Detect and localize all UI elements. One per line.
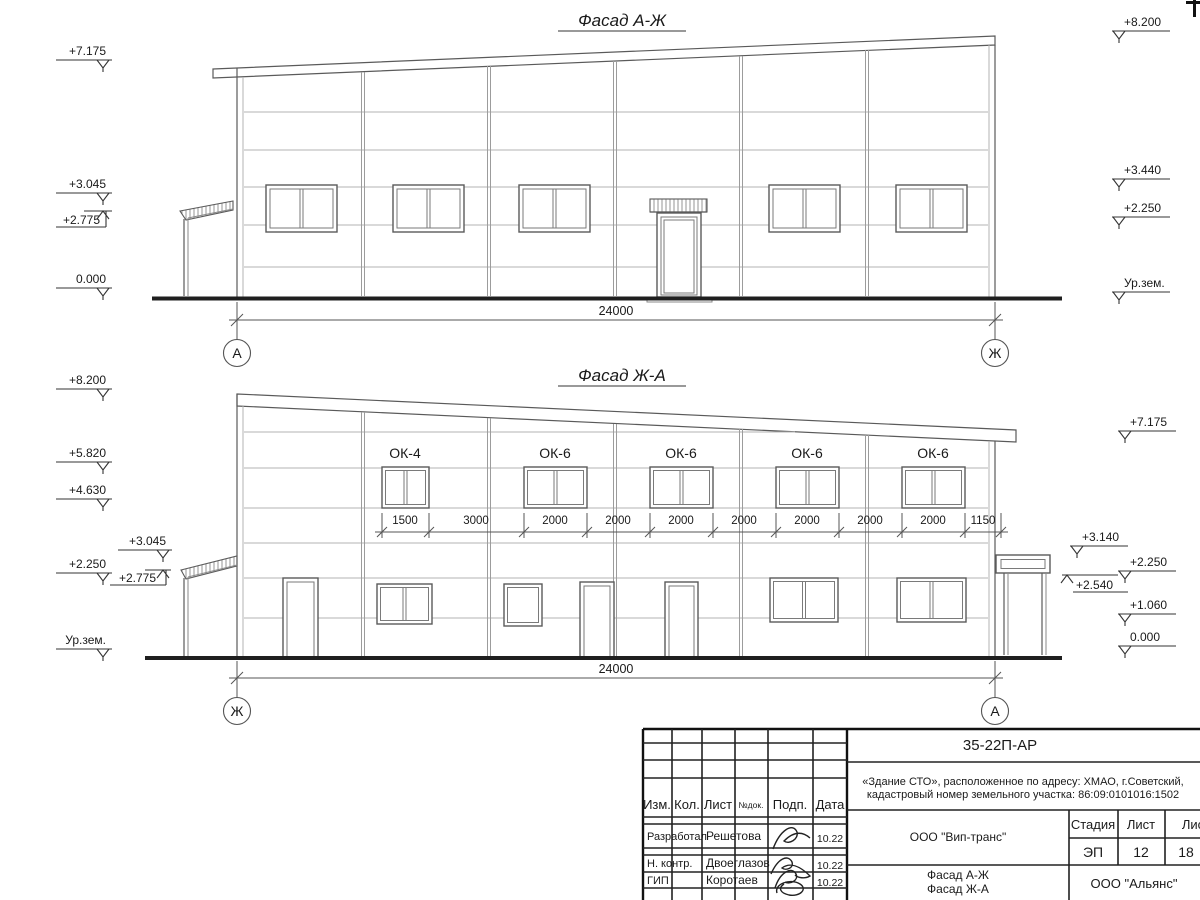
dim-text: 2000 xyxy=(857,515,883,527)
facade-top-dimension: 24000 xyxy=(229,302,1003,340)
row-role: Н. контр. xyxy=(647,858,692,870)
elevation-mark: +8.200 xyxy=(1124,15,1161,29)
facade-top-window-4 xyxy=(769,185,840,232)
signature-stroke xyxy=(771,858,810,878)
window-label: ОК-4 xyxy=(389,445,421,461)
dim-text: 2000 xyxy=(794,515,820,527)
facade-top-span-dim: 24000 xyxy=(599,304,634,318)
sheet-value: 12 xyxy=(1133,844,1149,860)
drawing-sheet: Фасад А-Ж xyxy=(0,0,1200,900)
elevation-mark: Ур.зем. xyxy=(1124,276,1165,290)
facade-top-porch xyxy=(180,201,233,296)
sheets-value: 18 xyxy=(1178,844,1194,860)
elevation-mark: +2.775 xyxy=(119,571,156,585)
facade-bottom-window-ok6-3 xyxy=(776,467,839,508)
facade-bottom-door-3 xyxy=(665,582,698,658)
drawing-title-line1: Фасад А-Ж xyxy=(927,868,989,882)
facade-top-title: Фасад А-Ж xyxy=(578,11,667,30)
axis-letter: Ж xyxy=(989,345,1002,361)
axis-marker-top-right: Ж xyxy=(982,340,1009,367)
facade-top-drawing: Фасад А-Ж xyxy=(56,11,1170,367)
col-header-kol: Кол. xyxy=(674,797,700,812)
elevation-mark: +7.175 xyxy=(1130,415,1167,429)
row-date: 10.22 xyxy=(817,833,843,845)
elevation-mark: Ур.зем. xyxy=(65,633,106,647)
col-header-podp: Подп. xyxy=(773,797,808,812)
title-block: Изм. Кол. Лист №док. Подп. Дата Разработ… xyxy=(643,729,1200,900)
facade-bottom-window-ok4 xyxy=(382,467,429,508)
facade-bottom-elevation-marks-left: +8.200 +5.820 +4.630 +3.045 +2.250 +2.77… xyxy=(56,373,172,661)
elevation-mark: +7.175 xyxy=(69,44,106,58)
facade-bottom-window-dims: 1500 3000 2000 2000 2000 2000 2000 2000 … xyxy=(375,513,1008,538)
window-label: ОК-6 xyxy=(917,445,949,461)
sheets-label: Листов xyxy=(1182,817,1200,832)
row-name: Двоеглазов xyxy=(706,856,770,870)
facade-bottom-dimension: 24000 xyxy=(229,661,1003,698)
facade-bottom-lower-window-4 xyxy=(897,578,966,622)
window-label: ОК-6 xyxy=(665,445,697,461)
axis-letter: А xyxy=(990,703,1000,719)
sheet-frame-corner xyxy=(1186,0,1200,17)
facade-bottom-door-2 xyxy=(580,582,614,658)
axis-marker-bottom-right: А xyxy=(982,698,1009,725)
facades-drawing-svg: Фасад А-Ж xyxy=(0,0,1200,900)
dim-text: 1150 xyxy=(971,515,996,527)
col-header-data: Дата xyxy=(816,797,846,812)
facade-bottom-window-ok6-1 xyxy=(524,467,587,508)
signature-row-developer: Разработал Решетова 10.22 xyxy=(647,828,843,849)
elevation-mark: +2.250 xyxy=(1124,201,1161,215)
window-label: ОК-6 xyxy=(539,445,571,461)
dim-text: 3000 xyxy=(463,515,489,527)
elevation-mark: +2.775 xyxy=(63,213,100,227)
facade-bottom-title: Фасад Ж-А xyxy=(578,366,666,385)
dim-text: 1500 xyxy=(392,515,418,527)
dim-text: 2000 xyxy=(920,515,946,527)
elevation-mark: +4.630 xyxy=(69,483,106,497)
project-description-line1: «Здание СТО», расположенное по адресу: Х… xyxy=(862,776,1183,788)
facade-bottom-porch xyxy=(181,556,237,656)
axis-marker-bottom-left: Ж xyxy=(224,698,251,725)
facade-top-window-5 xyxy=(896,185,967,232)
window-label: ОК-6 xyxy=(791,445,823,461)
elevation-mark: +2.540 xyxy=(1076,578,1113,592)
company-name: ООО "Вип-транс" xyxy=(910,830,1007,844)
elevation-mark: +2.250 xyxy=(69,557,106,571)
facade-bottom-window-ok6-2 xyxy=(650,467,713,508)
facade-bottom-drawing: Фасад Ж-А xyxy=(56,366,1176,725)
col-header-list: Лист xyxy=(704,797,732,812)
contractor-name: ООО "Альянс" xyxy=(1091,876,1178,891)
col-header-ndok: №док. xyxy=(739,800,764,810)
col-header-izm: Изм. xyxy=(643,797,671,812)
signature-row-gip: ГИП Коротаев 10.22 xyxy=(647,870,843,895)
elevation-mark: +3.045 xyxy=(69,177,106,191)
facade-bottom-elevation-marks-right: +7.175 +3.140 +2.250 +2.540 +1.060 0.000 xyxy=(1061,415,1176,658)
facade-top-window-3 xyxy=(519,185,590,232)
row-date: 10.22 xyxy=(817,860,843,872)
facade-bottom-span-dim: 24000 xyxy=(599,662,634,676)
row-name: Решетова xyxy=(706,829,761,843)
facade-top-window-2 xyxy=(393,185,464,232)
facade-top-entrance-door xyxy=(647,199,712,302)
elevation-mark: +8.200 xyxy=(69,373,106,387)
row-date: 10.22 xyxy=(817,877,843,889)
elevation-mark: +1.060 xyxy=(1130,598,1167,612)
elevation-mark: +3.140 xyxy=(1082,530,1119,544)
row-role: ГИП xyxy=(647,875,669,887)
elevation-mark: +3.440 xyxy=(1124,163,1161,177)
project-description-line2: кадастровый номер земельного участка: 86… xyxy=(867,789,1179,801)
axis-letter: Ж xyxy=(231,703,244,719)
facade-top-elevation-marks-right: +8.200 +3.440 +2.250 Ур.зем. xyxy=(1112,15,1170,304)
sheet-label: Лист xyxy=(1127,817,1155,832)
facade-bottom-right-canopy xyxy=(996,555,1050,655)
dim-text: 2000 xyxy=(605,515,631,527)
dim-text: 2000 xyxy=(668,515,694,527)
facade-top-window-1 xyxy=(266,185,337,232)
stage-label: Стадия xyxy=(1071,817,1115,832)
facade-top-elevation-marks-left: +7.175 +3.045 +2.775 0.000 xyxy=(56,44,112,300)
elevation-mark: 0.000 xyxy=(1130,630,1160,644)
facade-top-bay-lines xyxy=(362,50,869,296)
drawing-title-line2: Фасад Ж-А xyxy=(927,882,989,896)
axis-marker-top-left: А xyxy=(224,340,251,367)
facade-bottom-lower-window-1 xyxy=(377,584,432,624)
axis-letter: А xyxy=(232,345,242,361)
dim-text: 2000 xyxy=(542,515,568,527)
facade-bottom-door-1 xyxy=(283,578,318,658)
elevation-mark: +5.820 xyxy=(69,446,106,460)
elevation-mark: +3.045 xyxy=(129,534,166,548)
document-number: 35-22П-АР xyxy=(963,737,1037,754)
signature-stroke xyxy=(773,828,810,849)
facade-bottom-window-ok6-4 xyxy=(902,467,965,508)
stage-value: ЭП xyxy=(1083,844,1103,860)
row-name: Коротаев xyxy=(706,873,758,887)
dim-text: 2000 xyxy=(731,515,757,527)
facade-bottom-lower-window-3 xyxy=(770,578,838,622)
elevation-mark: +2.250 xyxy=(1130,555,1167,569)
elevation-mark: 0.000 xyxy=(76,272,106,286)
row-role: Разработал xyxy=(647,831,707,843)
signature-stroke xyxy=(775,870,803,895)
facade-bottom-lower-window-2 xyxy=(504,584,542,626)
